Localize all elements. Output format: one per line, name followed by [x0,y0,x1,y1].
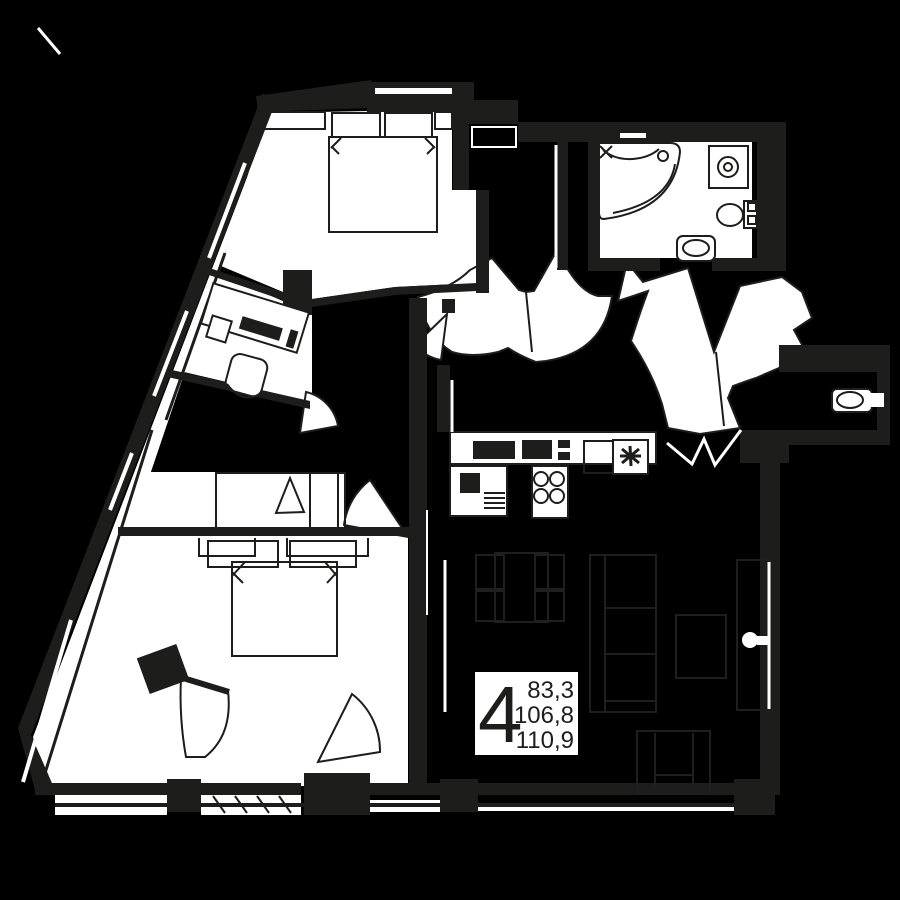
svg-text:110,9: 110,9 [516,727,574,754]
svg-text:106,8: 106,8 [514,702,574,729]
svg-text:83,3: 83,3 [527,677,574,704]
